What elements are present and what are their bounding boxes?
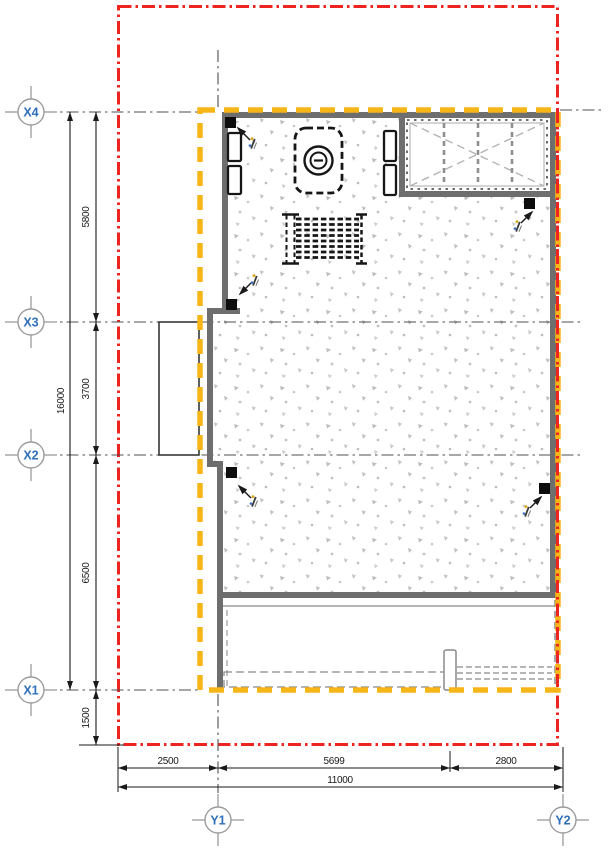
dim-left-overall-label: 16000	[56, 387, 67, 414]
dim-bottom-segment-0: 2500	[157, 756, 179, 767]
vent-block-4	[384, 165, 396, 195]
parapet-wall-top	[222, 112, 556, 118]
floor-plan-canvas: 16000 5800 3700 6500 1500 2500 5699 2800…	[0, 0, 608, 849]
parapet-wall-right	[550, 112, 556, 598]
grid-label-y2: Y2	[555, 814, 570, 828]
rooftop-unit	[295, 128, 342, 193]
balcony-outline	[159, 322, 199, 455]
dim-bottom-overall-label: 11000	[327, 775, 353, 786]
vent-block-3	[384, 131, 396, 161]
terrace-wall-left	[217, 598, 223, 690]
parapet-wall-left-mid	[207, 308, 213, 467]
dim-left-segment-0: 5800	[81, 206, 92, 228]
dim-left-segment-1: 3700	[81, 378, 92, 400]
grid-label-x1: X1	[23, 684, 38, 698]
grid-label-x4: X4	[23, 106, 38, 120]
grid-label-y1: Y1	[210, 814, 225, 828]
roof-drain-marker-1	[225, 117, 236, 128]
vent-block-2	[228, 166, 241, 194]
grid-label-x3: X3	[23, 316, 38, 330]
roof-drain-marker-2	[226, 299, 237, 310]
vent-block-1	[228, 133, 241, 161]
terrace-post	[444, 650, 456, 690]
dim-left-segment-3: 1500	[81, 707, 92, 729]
skylight-shaft	[407, 120, 547, 189]
roof-drain-marker-5	[539, 483, 550, 494]
dim-bottom-segment-1: 5699	[323, 756, 345, 767]
shaft-wall-left	[399, 112, 405, 197]
shaft-wall-bottom	[399, 191, 556, 197]
roof-plan-drawing: 16000 5800 3700 6500 1500 2500 5699 2800…	[0, 0, 608, 849]
dim-left-segment-2: 6500	[81, 562, 92, 584]
parapet-wall-left-lower	[217, 461, 223, 598]
roof-drain-marker-4	[524, 198, 535, 209]
dim-bottom-segment-2: 2800	[495, 756, 517, 767]
grid-label-x2: X2	[23, 449, 38, 463]
roof-drain-marker-3	[226, 467, 237, 478]
parapet-wall-bottom	[217, 592, 556, 598]
